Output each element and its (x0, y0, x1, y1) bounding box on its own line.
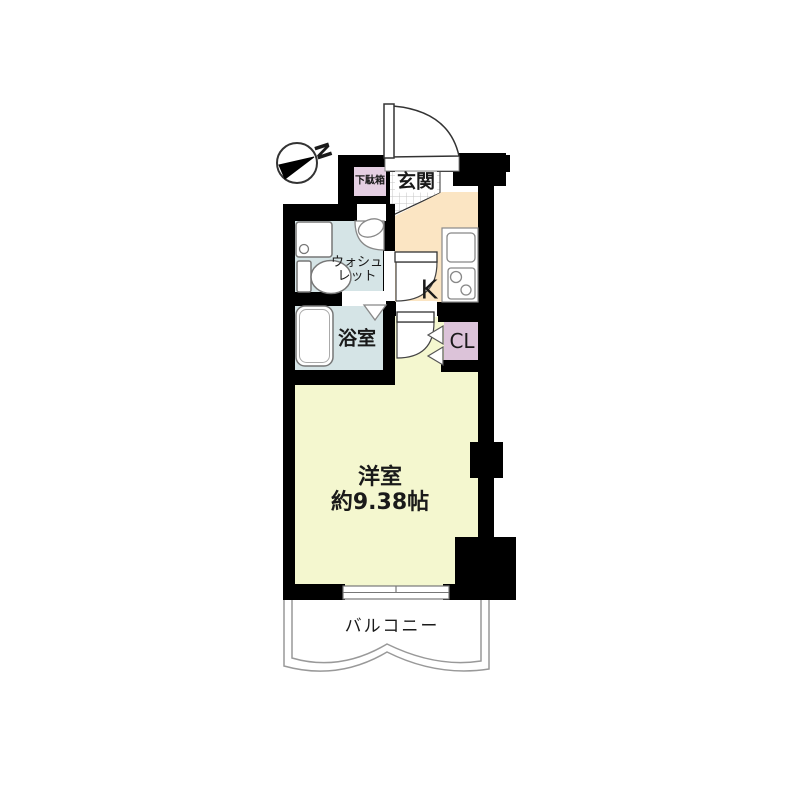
washlet-door-leaf (395, 252, 437, 262)
main-door-leaf (397, 312, 434, 322)
kitchen-label: K (420, 277, 437, 306)
toilet-tank (297, 261, 311, 292)
entry-door-sill (385, 156, 459, 171)
entry-door-swing (389, 106, 459, 157)
stove-burner-2 (461, 285, 471, 295)
stove-burner-1 (451, 272, 462, 283)
washlet-vanity-drain (300, 245, 309, 254)
balcony-label: バルコニー (345, 618, 440, 637)
wall-bottom-left (283, 584, 345, 600)
floorplan-page: N 下駄箱 玄関 ウォシュ レット 浴室 K CL 洋室 約9.38帖 バルコニ… (0, 0, 800, 800)
closet-label: CL (449, 330, 474, 352)
wall-right (478, 172, 494, 545)
gap-bath-door (342, 291, 386, 306)
bathroom-label: 浴室 (338, 329, 376, 350)
wall-bath-bottom (283, 370, 395, 385)
washlet-label-line1: ウォシュ (331, 256, 383, 270)
pillar-large (455, 537, 516, 600)
wall-left (283, 204, 295, 600)
pillar-small (470, 442, 503, 478)
kitchen-sink (447, 233, 475, 262)
main-room-size: 約9.38帖 (331, 490, 429, 515)
washlet-label: ウォシュ レット (331, 256, 383, 284)
getabako-label: 下駄箱 (355, 176, 385, 187)
genkan-label: 玄関 (395, 172, 437, 193)
main-room-name: 洋室 (331, 465, 429, 490)
wall-entry-left (338, 155, 352, 208)
washlet-label-line2: レット (331, 270, 383, 284)
bathtub (296, 306, 333, 366)
main-room-label: 洋室 約9.38帖 (331, 465, 429, 515)
entry-door-leaf (384, 104, 394, 158)
floorplan-drawing (0, 0, 800, 800)
